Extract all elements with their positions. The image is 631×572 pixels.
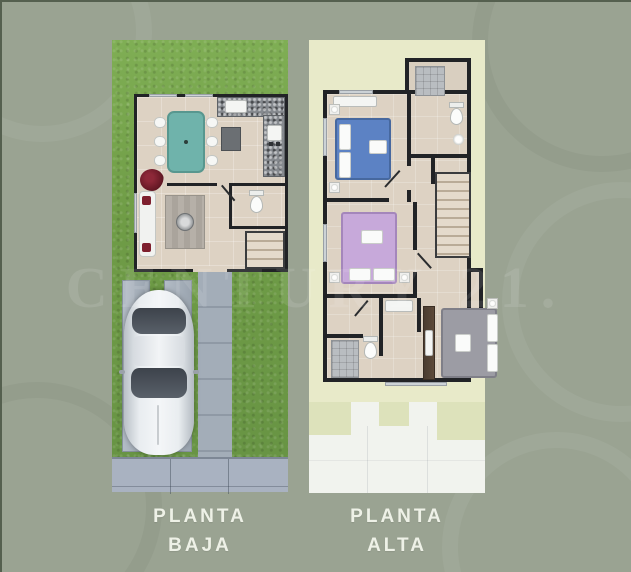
bed-pillow (487, 314, 498, 342)
walkway-path (198, 272, 232, 457)
interior-wall (413, 202, 417, 250)
lamp-icon (401, 274, 408, 281)
interior-wall (167, 183, 217, 186)
car-rear-window (132, 308, 186, 334)
lamp-icon (489, 300, 496, 307)
stove (267, 125, 282, 141)
interior-wall (417, 298, 421, 332)
car-windshield (131, 368, 187, 398)
interior-wall (407, 190, 411, 202)
staircase-upper (435, 172, 471, 258)
floorplan-marketing-image: CENTURY 21. (0, 0, 631, 572)
pavement-joint (170, 459, 171, 494)
folded-blanket (361, 230, 383, 244)
label-line: ALTA (297, 531, 497, 560)
lamp-icon (331, 274, 338, 281)
window (339, 90, 373, 94)
dining-chair (206, 136, 218, 147)
shower (415, 66, 445, 96)
bed-bedroom1 (335, 118, 391, 180)
interior-wall (229, 226, 285, 229)
toilet (250, 196, 263, 213)
tv-icon (425, 330, 433, 356)
dining-chair (154, 117, 166, 128)
car-hood-line (157, 405, 159, 445)
bed-pillow (487, 344, 498, 372)
roof-patch (379, 402, 409, 426)
upper-floor-panel (309, 40, 485, 493)
bed-pillow (339, 124, 351, 150)
label-line: PLANTA (297, 502, 497, 531)
dining-chair (206, 117, 218, 128)
pavement-joint (228, 459, 229, 494)
dining-chair (154, 136, 166, 147)
folded-blanket (455, 334, 471, 352)
folded-blanket (369, 140, 387, 154)
kitchen-sink (225, 100, 247, 113)
pavement-joint (112, 486, 288, 487)
roof-patch (309, 402, 351, 435)
shower (331, 340, 359, 378)
sofa-cushion (142, 196, 151, 205)
door-swing (417, 253, 432, 269)
table-centerpiece-icon (184, 140, 188, 144)
stove-burner-icon (276, 142, 280, 146)
bed-bedroom2 (341, 212, 397, 284)
car-side-mirror (119, 370, 125, 374)
lamp-icon (331, 106, 338, 113)
toilet (450, 108, 463, 125)
dining-chair (154, 155, 166, 166)
window (134, 193, 137, 233)
window (323, 224, 327, 262)
interior-wall (379, 298, 383, 356)
bathroom-sink (453, 134, 464, 145)
car-top-view (124, 290, 194, 455)
coffee-table (176, 213, 194, 231)
interior-wall (327, 198, 389, 202)
terrace-roof (309, 402, 485, 493)
bed-pillow (339, 152, 351, 178)
label-line: BAJA (100, 531, 300, 560)
car-roof (133, 336, 185, 366)
sidewalk (112, 457, 288, 492)
ground-floor-panel (112, 40, 288, 492)
closet (385, 300, 413, 312)
upper-floor-outline (323, 90, 471, 382)
window (149, 94, 177, 97)
interior-wall (411, 154, 471, 158)
label-planta-alta: PLANTA ALTA (297, 502, 497, 560)
brand-seal-watermark (502, 182, 631, 422)
staircase (245, 231, 285, 269)
car-side-mirror (193, 370, 199, 374)
toilet (364, 342, 377, 359)
interior-wall (229, 183, 285, 186)
sliding-door (385, 382, 447, 386)
stove-burner-icon (269, 142, 273, 146)
interior-wall (327, 294, 417, 298)
interior-wall (229, 183, 232, 229)
brand-seal-watermark (472, 0, 631, 172)
door-swing (354, 300, 368, 317)
sofa-cushion (142, 243, 151, 252)
bed-master (441, 308, 497, 378)
window (323, 118, 327, 156)
roof-joint (309, 460, 485, 461)
decorative-plant (140, 169, 164, 191)
window (185, 94, 213, 97)
interior-wall (327, 334, 363, 338)
roof-patch (437, 402, 485, 440)
dining-chair (206, 155, 218, 166)
bed-pillow (349, 268, 371, 281)
ground-floor-house-outline (134, 94, 288, 272)
refrigerator (221, 127, 241, 151)
label-line: PLANTA (100, 502, 300, 531)
bed-pillow (373, 268, 395, 281)
label-planta-baja: PLANTA BAJA (100, 502, 300, 560)
lamp-icon (331, 184, 338, 191)
